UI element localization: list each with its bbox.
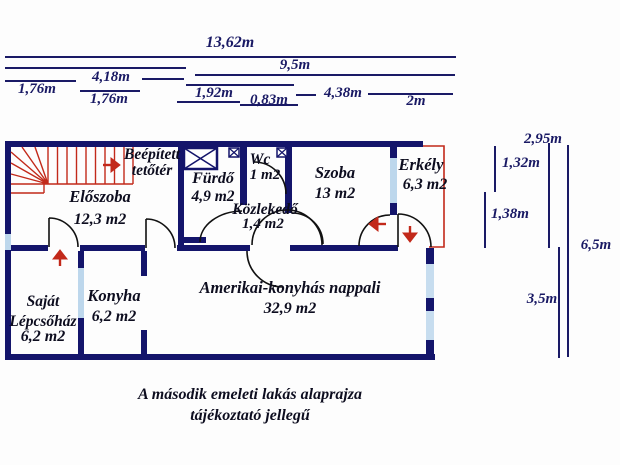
room-area-eloszoba: 12,3 m2: [55, 212, 145, 229]
room-label-nappali: Amerikai-konyhás nappali: [180, 279, 400, 296]
room-label-furdo: Fürdő: [184, 171, 242, 188]
dimension-label-1-32: 1,32m: [496, 156, 546, 172]
dimension-label-2: 2m: [398, 94, 434, 110]
wall-mid: [5, 245, 48, 251]
door-eloszoba: [146, 219, 175, 248]
caption-line-1: A második emeleti lakás alaprajza: [60, 387, 440, 404]
dimension-label-9-5: 9,5m: [265, 58, 325, 74]
wall-left-upper: [5, 141, 11, 234]
wall-konyha-right-lower: [141, 330, 147, 354]
wall-mid: [290, 245, 398, 251]
wall-konyha-right-stub: [141, 251, 147, 276]
room-area-erkely: 6,3 m2: [394, 177, 456, 194]
left-arrow-icon: [369, 217, 386, 231]
dimension-label-4-18: 4,18m: [80, 70, 142, 86]
dimension-label-6-5: 6,5m: [574, 238, 618, 254]
dimension-label-2-95: 2,95m: [516, 132, 570, 148]
room-label-lepcsohaz: Saját Lépcsőház: [2, 292, 84, 332]
dimension-label-13-62: 13,62m: [185, 35, 275, 52]
room-label-wc: Wc: [240, 152, 280, 168]
room-label-erkely: Erkély: [390, 156, 452, 173]
room-area-wc: 1 m2: [240, 168, 290, 184]
dimension-label-1-92: 1,92m: [186, 86, 242, 102]
caption-line-2: tájékoztató jellegű: [60, 408, 440, 425]
floor-plan-image: 13,62m 9,5m 4,18m 1,76m 1,76m 1,92m 0,83…: [0, 0, 620, 465]
dimension-label-1-76-b: 1,76m: [80, 92, 138, 108]
wall-top: [5, 141, 423, 147]
room-area-szoba: 13 m2: [300, 186, 370, 203]
dimension-label-4-38: 4,38m: [314, 86, 372, 102]
room-area-kozlekedo: 1,4 m2: [228, 217, 298, 233]
room-area-lepcsohaz: 6,2 m2: [10, 329, 76, 346]
dimension-label-1-76-a: 1,76m: [8, 82, 66, 98]
window-left-wall: [5, 234, 11, 250]
wall-konyha-left-top: [78, 251, 84, 268]
room-area-konyha: 6,2 m2: [82, 309, 146, 326]
up-arrow-icon: [53, 250, 67, 266]
wall-mid: [80, 245, 145, 251]
down-arrow-icon: [403, 226, 417, 242]
door-erkely-nappali: [398, 214, 431, 247]
dimension-label-3-5: 3,5m: [520, 292, 564, 308]
room-label-tetoter: Beépített tetőtér: [110, 147, 194, 180]
dimension-label-0-83: 0,83m: [240, 93, 298, 109]
room-label-szoba: Szoba: [300, 164, 370, 181]
wall-furdo-bottom: [184, 237, 206, 243]
right-dimension-lines: [485, 143, 568, 358]
room-label-konyha: Konyha: [78, 287, 150, 304]
room-label-eloszoba: Előszoba: [55, 188, 145, 205]
wall-szoba-erkely-mid: [390, 203, 397, 215]
wall-mid: [177, 245, 250, 251]
room-area-nappali: 32,9 m2: [230, 301, 350, 318]
dimension-label-1-38: 1,38m: [485, 207, 535, 223]
wall-bottom: [5, 354, 435, 360]
